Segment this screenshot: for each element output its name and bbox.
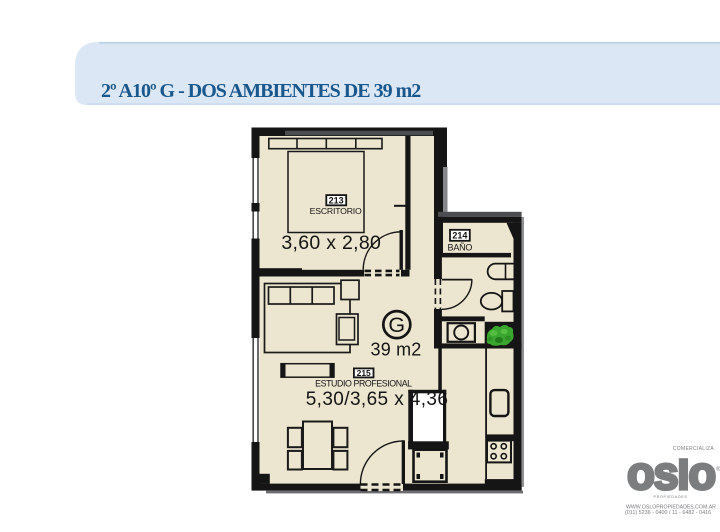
svg-text:39 m2: 39 m2 — [370, 340, 421, 360]
svg-text:ESCRITORIO: ESCRITORIO — [310, 206, 362, 216]
svg-text:ESTUDIO PROFESIONAL: ESTUDIO PROFESIONAL — [315, 378, 412, 388]
svg-text:3,60 x 2,80: 3,60 x 2,80 — [281, 232, 381, 254]
svg-text:2º A10º G - DOS AMBIENTES DE 3: 2º A10º G - DOS AMBIENTES DE 39 m2 — [101, 80, 421, 102]
svg-text:®: ® — [716, 466, 720, 473]
svg-text:5,30/3,65 x 4,36: 5,30/3,65 x 4,36 — [306, 389, 449, 410]
svg-text:215: 215 — [357, 368, 371, 378]
svg-text:oslo: oslo — [627, 448, 715, 499]
svg-text:G: G — [388, 313, 405, 337]
svg-text:BAÑO: BAÑO — [448, 243, 473, 253]
svg-text:214: 214 — [452, 231, 467, 241]
svg-text:PROPIEDADES: PROPIEDADES — [653, 495, 687, 499]
svg-text:(011) 5236 - 0400 / 11 - 6482: (011) 5236 - 0400 / 11 - 6482 - 0416 — [625, 510, 711, 516]
svg-text:213: 213 — [329, 195, 344, 205]
